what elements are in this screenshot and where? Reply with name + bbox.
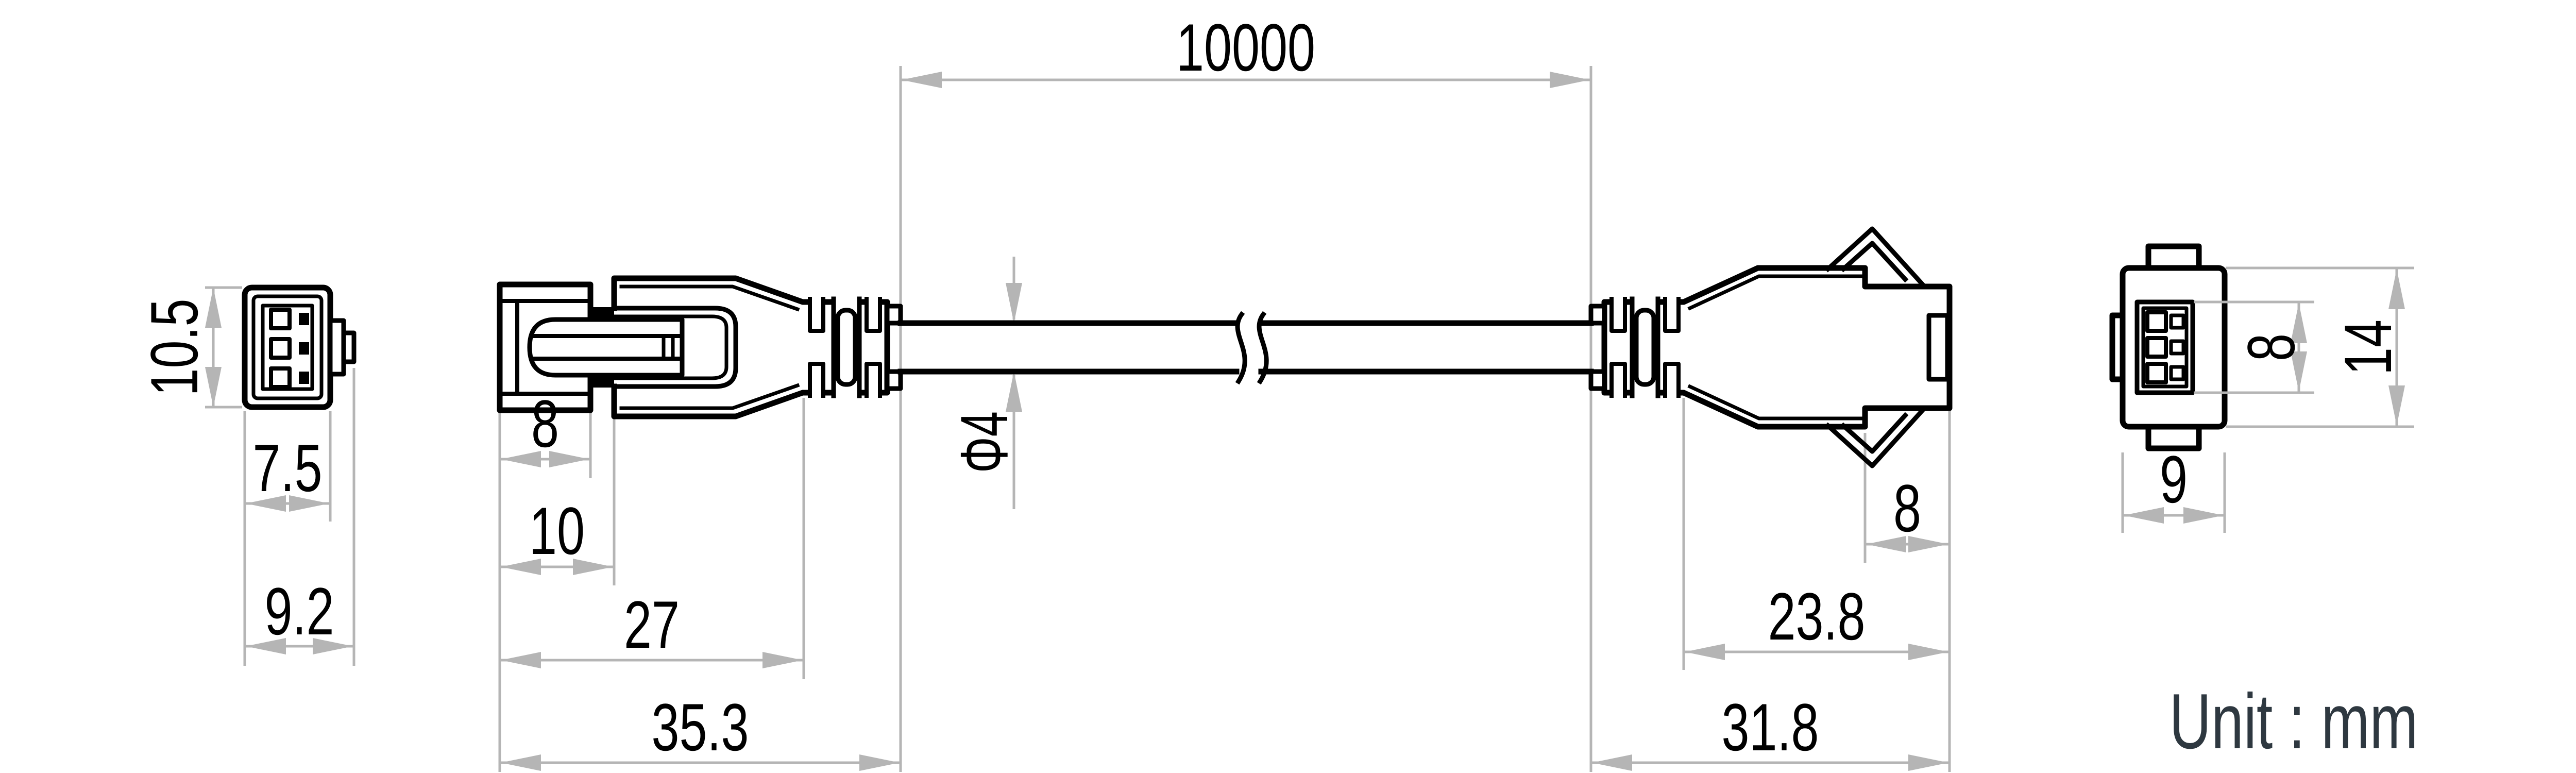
dim-label-side-right-tip: 8	[1893, 470, 1921, 546]
cable	[901, 314, 1591, 381]
dim-label-side-right-overall: 31.8	[1722, 690, 1819, 765]
arrow-up-icon	[2388, 269, 2405, 309]
dimension-labels: 10.5 7.5 9.2 8 10 27 35.3 10000 Φ4 8 23.…	[137, 10, 2418, 765]
corrugation-ring	[1636, 310, 1654, 384]
arrow-left-icon	[501, 754, 541, 771]
arrow-left-icon	[501, 652, 541, 668]
dim-label-side-left-body: 27	[624, 587, 680, 662]
pin-hole	[2147, 338, 2166, 357]
arrow-left-icon	[1685, 644, 1725, 660]
dim-label-side-left-housing: 10	[529, 493, 585, 568]
technical-drawing-page: 10.5 7.5 9.2 8 10 27 35.3 10000 Φ4 8 23.…	[0, 0, 2576, 773]
pin-hole	[271, 368, 290, 387]
dim-label-side-left-overall: 35.3	[652, 690, 749, 765]
dim-label-cable-length: 10000	[1176, 10, 1315, 85]
cable-collar	[1591, 306, 1604, 323]
arrow-down-icon	[2388, 385, 2405, 426]
corrugation-ring	[838, 310, 855, 384]
arrow-right-icon	[859, 754, 900, 771]
arrow-right-icon	[1908, 644, 1948, 660]
dim-label-front-right-height: 14	[2330, 320, 2405, 375]
dim-label-cable-diameter: Φ4	[946, 411, 1022, 473]
pin-slot	[299, 342, 309, 355]
pin-hole	[2147, 364, 2166, 382]
dim-label-front-right-width: 9	[2160, 442, 2188, 517]
terminal-blade	[530, 320, 682, 375]
pin-slot	[2171, 341, 2183, 354]
arrow-right-icon	[1908, 754, 1948, 771]
pin-slot	[2171, 315, 2183, 328]
cable-assembly-drawing: 10.5 7.5 9.2 8 10 27 35.3 10000 Φ4 8 23.…	[0, 0, 2576, 773]
arrow-left-icon	[2124, 507, 2164, 524]
arrow-right-icon	[1550, 72, 1590, 88]
arrow-up-icon	[1006, 372, 1022, 412]
latch-nub	[344, 333, 354, 362]
pin-hole	[271, 310, 290, 328]
view-side-left-connector	[500, 278, 901, 416]
dim-label-side-right-body: 23.8	[1768, 579, 1866, 654]
arrow-left-icon	[902, 72, 942, 88]
dim-label-front-left-height: 10.5	[137, 299, 212, 396]
view-front-left-connector	[245, 288, 354, 407]
unit-label: Unit : mm	[2170, 678, 2418, 765]
arrow-left-icon	[1592, 754, 1632, 771]
arrow-right-icon	[762, 652, 803, 668]
cable-collar	[1591, 372, 1604, 389]
dim-label-front-left-width: 7.5	[253, 430, 323, 506]
pin-slot	[299, 313, 309, 325]
arrow-right-icon	[2183, 507, 2224, 524]
dimension-lines-under	[205, 66, 1950, 772]
pin-hole	[2147, 312, 2166, 331]
dim-label-front-right-inner-height: 8	[2233, 333, 2309, 361]
pin-slot	[2171, 367, 2183, 379]
end-cap-detail	[1929, 315, 1947, 379]
dim-label-side-left-cap: 8	[531, 386, 559, 461]
pin-slot	[299, 372, 309, 384]
dim-label-front-left-overall-width: 9.2	[265, 574, 334, 649]
arrow-down-icon	[1006, 283, 1022, 323]
pin-hole	[271, 339, 290, 358]
view-side-right-connector	[1591, 229, 1950, 466]
view-front-right-connector	[2112, 246, 2225, 448]
